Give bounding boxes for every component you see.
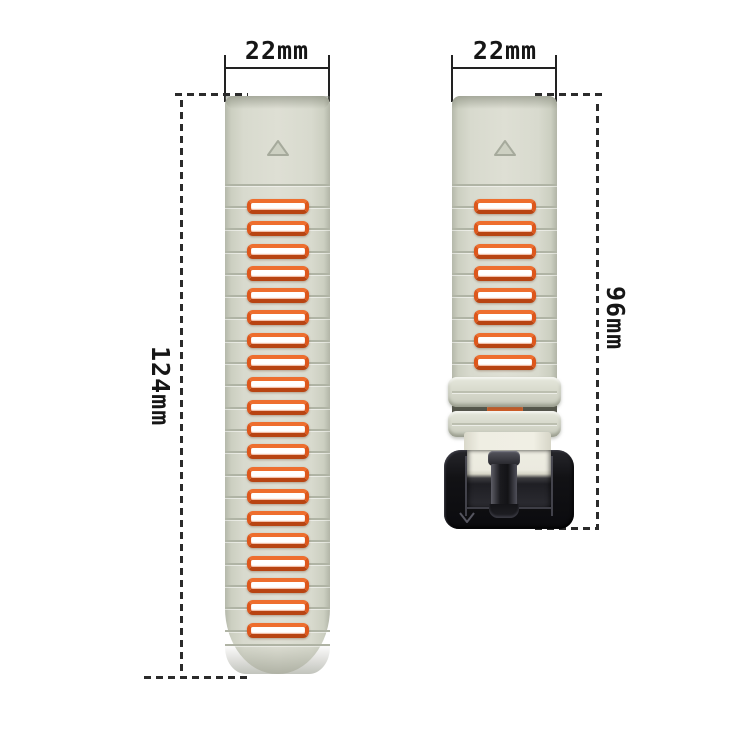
orange-segment — [247, 511, 309, 526]
orange-segment — [247, 266, 309, 281]
right-width-dimension-line — [452, 67, 556, 69]
orange-segment — [474, 310, 536, 325]
strap-segment-row — [225, 397, 330, 419]
orange-segment — [247, 221, 309, 236]
right-length-dimension-line — [596, 104, 599, 530]
orange-segment — [247, 400, 309, 415]
orange-segment — [474, 333, 536, 348]
orange-segment — [247, 489, 309, 504]
strap-segment-row — [225, 553, 330, 575]
groove-line — [452, 423, 557, 425]
orange-segment — [247, 199, 309, 214]
orange-segment — [474, 244, 536, 259]
orange-segment — [247, 244, 309, 259]
groove-line — [225, 644, 330, 646]
keeper-loop-1 — [448, 377, 561, 407]
strap-segment-row — [452, 218, 557, 240]
strap-segment-row — [452, 307, 557, 329]
left-width-dimension-line — [225, 67, 329, 69]
groove-line — [452, 184, 557, 186]
strap-segment-row — [225, 352, 330, 374]
right-width-tick-left — [451, 55, 453, 102]
orange-segment — [247, 310, 309, 325]
strap-segment-row — [452, 352, 557, 374]
strap-segment-row — [452, 196, 557, 218]
strap-segment-row — [225, 419, 330, 441]
orange-segment — [474, 221, 536, 236]
orange-segment — [247, 623, 309, 638]
right-strap-segments — [452, 196, 557, 374]
left-strap — [225, 96, 330, 674]
triangle-up-icon — [265, 138, 291, 158]
orange-segment — [247, 355, 309, 370]
strap-segment-row — [225, 575, 330, 597]
strap-segment-row — [225, 263, 330, 285]
strap-segment-row — [225, 307, 330, 329]
orange-segment — [247, 600, 309, 615]
groove-line — [225, 184, 330, 186]
strap-segment-row — [225, 285, 330, 307]
product-dimension-figure: 22mm 124mm 22mm 96mm — [0, 0, 750, 750]
left-length-extension-bottom — [144, 676, 248, 679]
triangle-up-icon — [492, 138, 518, 158]
left-strap-segments — [225, 196, 330, 642]
orange-segment — [474, 199, 536, 214]
strap-segment-row — [225, 597, 330, 619]
orange-segment — [474, 288, 536, 303]
right-strap-length-label: 96mm — [601, 282, 629, 354]
orange-segment — [247, 533, 309, 548]
orange-segment — [247, 422, 309, 437]
orange-segment — [247, 467, 309, 482]
strap-segment-row — [225, 530, 330, 552]
orange-segment — [474, 355, 536, 370]
strap-segment-row — [225, 508, 330, 530]
strap-segment-row — [452, 263, 557, 285]
v-logo-icon — [457, 510, 477, 525]
buckle-highlight — [551, 456, 553, 516]
left-width-tick-right — [328, 55, 330, 102]
strap-segment-row — [225, 620, 330, 642]
strap-segment-row — [452, 285, 557, 307]
strap-segment-row — [225, 441, 330, 463]
left-length-dimension-line — [180, 100, 183, 672]
orange-segment — [247, 578, 309, 593]
orange-segment — [247, 333, 309, 348]
orange-segment — [247, 288, 309, 303]
strap-segment-row — [225, 241, 330, 263]
prong-foot — [489, 504, 519, 518]
orange-segment — [247, 377, 309, 392]
left-strap-length-label: 124mm — [146, 336, 174, 436]
strap-segment-row — [225, 464, 330, 486]
orange-segment — [247, 444, 309, 459]
prong-shaft — [491, 464, 517, 506]
strap-segment-row — [452, 330, 557, 352]
orange-segment — [247, 556, 309, 571]
strap-segment-row — [225, 196, 330, 218]
strap-segment-row — [452, 241, 557, 263]
strap-segment-row — [225, 330, 330, 352]
right-strap-width-label: 22mm — [455, 37, 555, 65]
left-strap-width-label: 22mm — [227, 37, 327, 65]
strap-segment-row — [225, 486, 330, 508]
buckle-prong — [488, 451, 520, 518]
groove-line — [452, 391, 557, 393]
strap-segment-row — [225, 218, 330, 240]
strap-segment-row — [225, 374, 330, 396]
orange-segment — [474, 266, 536, 281]
